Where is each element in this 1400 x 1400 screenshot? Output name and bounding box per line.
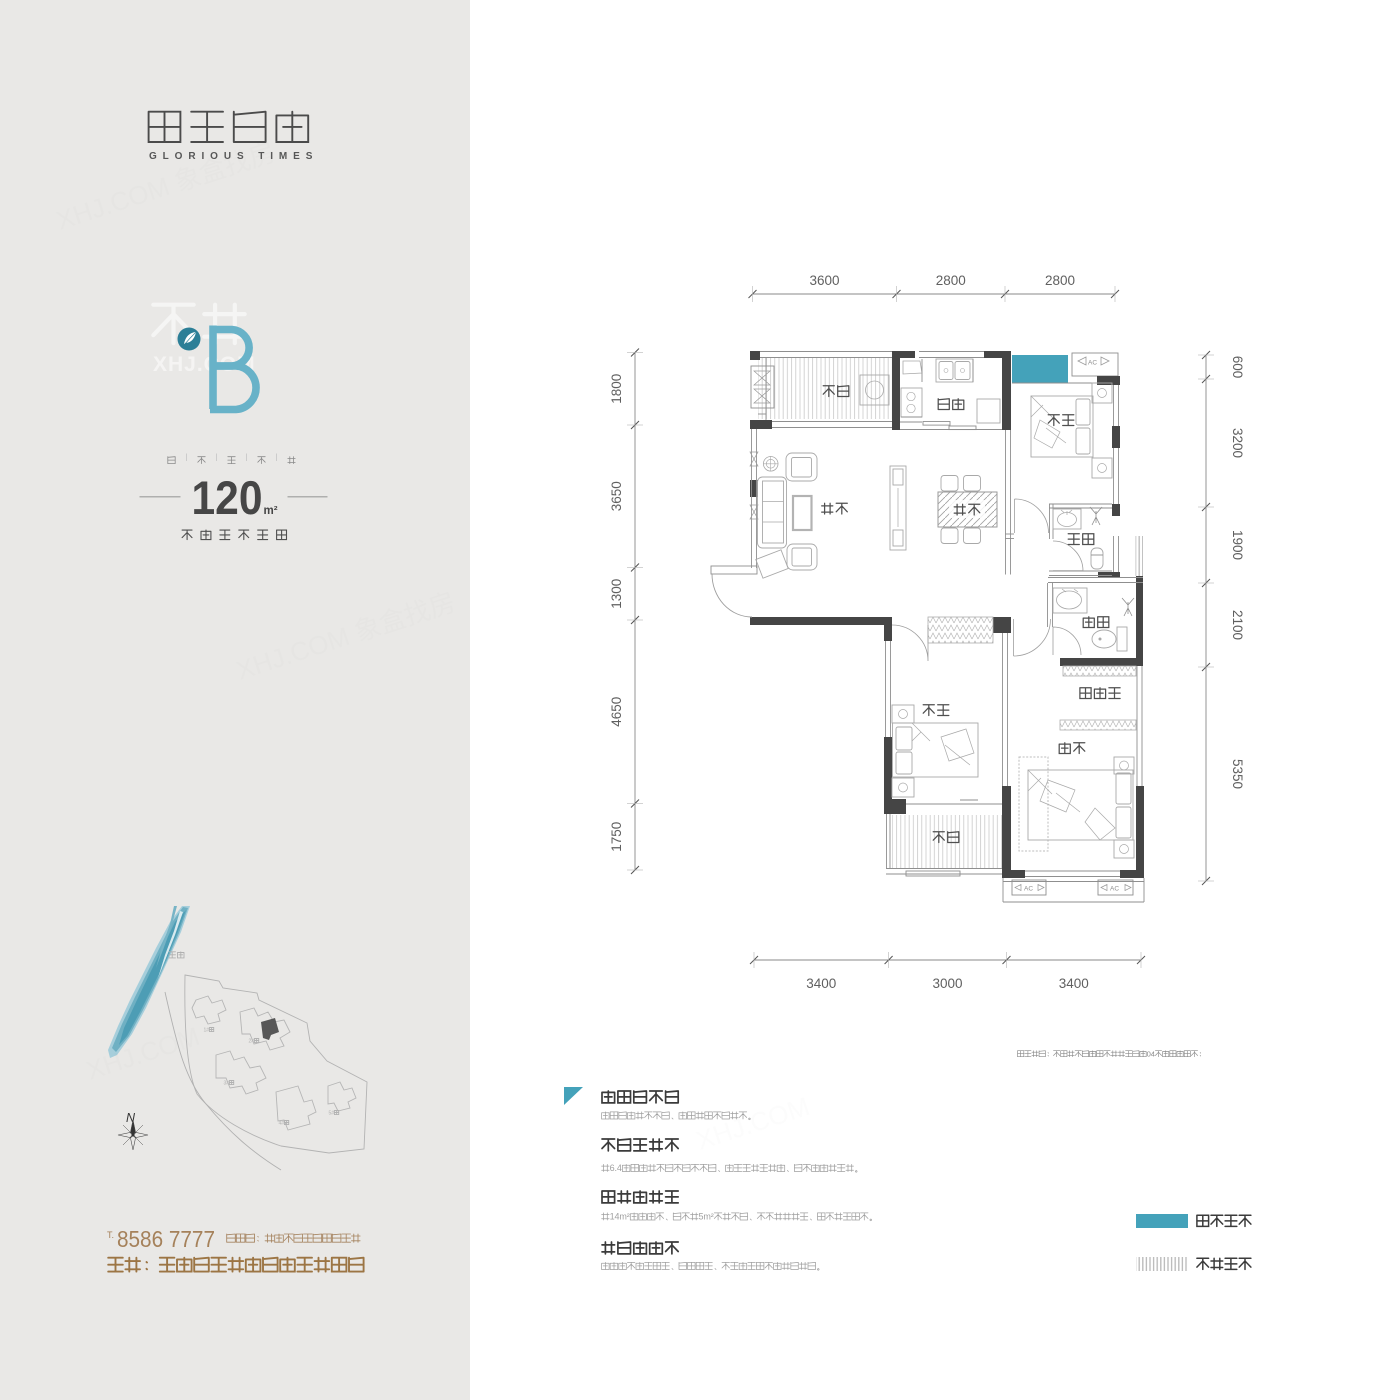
svg-text:3650: 3650 [609, 481, 624, 511]
svg-text:2800: 2800 [936, 273, 966, 288]
svg-text:3400: 3400 [1059, 976, 1089, 991]
svg-text:#: # [251, 1038, 254, 1044]
svg-text:2800: 2800 [1045, 273, 1075, 288]
svg-text:m: m [619, 1212, 627, 1222]
svg-text:T.: T. [107, 1230, 114, 1240]
svg-text:#: # [281, 1120, 284, 1126]
svg-text:3600: 3600 [809, 273, 839, 288]
svg-text:²: ² [711, 1212, 714, 1222]
svg-text:1300: 1300 [609, 579, 624, 609]
svg-text:m²: m² [264, 505, 278, 517]
svg-text:3000: 3000 [933, 976, 963, 991]
svg-text:AC: AC [1088, 360, 1097, 367]
svg-text:5350: 5350 [1230, 759, 1245, 789]
svg-text:N: N [126, 1111, 136, 1125]
svg-text:2100: 2100 [1230, 610, 1245, 640]
svg-text:1900: 1900 [1230, 530, 1245, 560]
svg-text:120: 120 [192, 471, 263, 524]
svg-text:3400: 3400 [806, 976, 836, 991]
svg-text:1800: 1800 [609, 374, 624, 404]
svg-text:600: 600 [1230, 356, 1245, 379]
svg-text:XHJ.COM: XHJ.COM [693, 1091, 814, 1156]
svg-text:4650: 4650 [609, 697, 624, 727]
svg-text:3200: 3200 [1230, 428, 1245, 458]
svg-text:4: 4 [617, 1163, 622, 1173]
svg-text:#: # [206, 1027, 209, 1033]
svg-text:8586 7777: 8586 7777 [117, 1226, 215, 1252]
svg-text:²: ² [627, 1212, 630, 1222]
svg-text:4: 4 [1151, 1049, 1155, 1058]
svg-text:#: # [331, 1110, 334, 1116]
svg-text:#: # [226, 1080, 229, 1086]
svg-text:AC: AC [1110, 886, 1119, 893]
svg-text:1750: 1750 [609, 822, 624, 852]
svg-text:m: m [703, 1212, 711, 1222]
svg-text:AC: AC [1024, 886, 1033, 893]
